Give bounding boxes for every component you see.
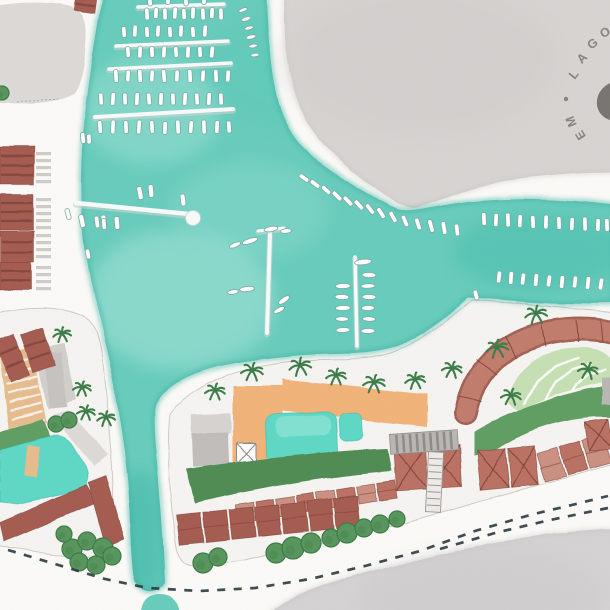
paper-grain-overlay xyxy=(0,0,610,610)
watercolor-resort-map: LAGOME xyxy=(0,0,610,610)
